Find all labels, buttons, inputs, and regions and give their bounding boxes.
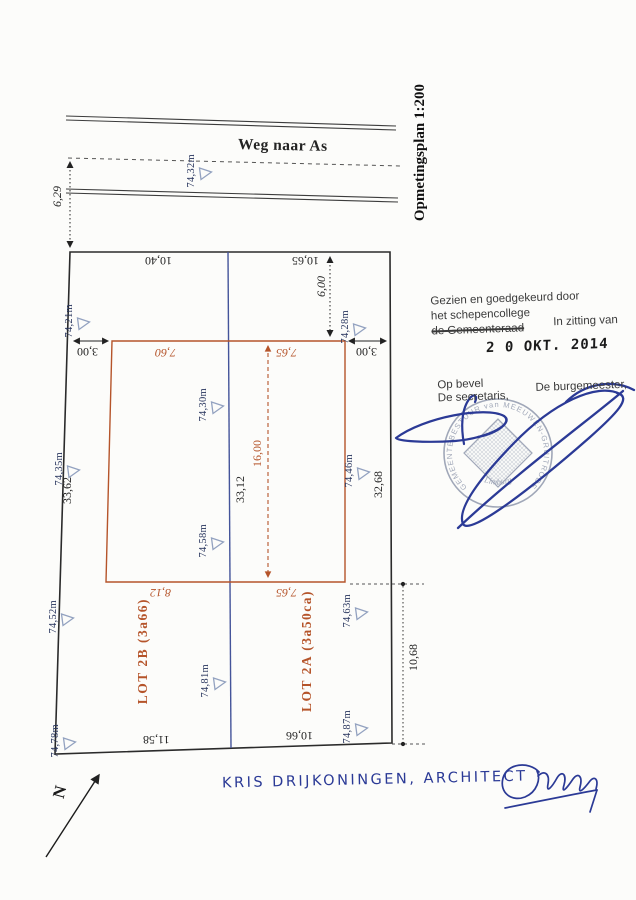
session-label: In zitting van: [553, 314, 618, 328]
benchmark-triangle-icon: [212, 677, 227, 691]
benchmark-triangle-icon: [352, 323, 367, 337]
elevation-marker: 74,35m: [54, 428, 81, 486]
elevation-marker: 74,32m: [186, 130, 213, 188]
secretary-label: De secretaris,: [438, 390, 509, 404]
elevation-marker: 74,78m: [50, 700, 77, 758]
benchmark-triangle-icon: [198, 167, 213, 181]
dim-zone-top-left: 7,60: [155, 345, 176, 360]
elevation-marker: 74,21m: [64, 280, 91, 338]
dim-front-left: 10,40: [145, 253, 172, 268]
approval-line3-struck: de Gemeenteraad: [431, 322, 524, 337]
mayor-label: De burgemeester,: [535, 379, 627, 394]
benchmark-triangle-icon: [62, 737, 77, 751]
dim-zone-bottom-right: 7,65: [276, 585, 297, 600]
dim-setback-right: 3,00: [356, 344, 377, 359]
elevation-marker: 74,63m: [342, 570, 369, 628]
benchmark-triangle-icon: [354, 723, 369, 737]
elevation-marker: 74,58m: [198, 500, 225, 558]
mayor-signature: [458, 384, 634, 528]
dim-rear-right: 10,66: [286, 728, 313, 743]
approval-line2: het schepencollege: [431, 307, 530, 322]
elevation-marker: 74,30m: [198, 364, 225, 422]
dim-side-right: 32,68: [371, 471, 386, 498]
plan-title: Opmetingsplan 1:200: [412, 84, 429, 221]
dim-zone-depth: 16,00: [250, 440, 265, 467]
lot-2b-label: LOT 2B (3a66): [135, 598, 151, 704]
elevation-marker: 74,46m: [344, 430, 371, 488]
elevation-marker: 74,87m: [342, 686, 369, 744]
dim-road-offset: 6,29: [50, 186, 65, 207]
dim-right-rear-offset: 10,68: [406, 644, 421, 671]
order-label: Op bevel: [437, 378, 483, 392]
benchmark-triangle-icon: [356, 467, 371, 481]
elevation-marker: 74,81m: [200, 640, 227, 698]
signatures-layer: [0, 0, 636, 900]
lot-2a-label: LOT 2A (3a50ca): [299, 590, 315, 712]
benchmark-triangle-icon: [66, 465, 81, 479]
benchmark-triangle-icon: [210, 537, 225, 551]
dim-build-depth-offset: 6,00: [314, 276, 329, 297]
benchmark-triangle-icon: [210, 401, 225, 415]
elevation-marker: 74,52m: [48, 576, 75, 634]
benchmark-triangle-icon: [76, 317, 91, 331]
road-name-label: Weg naar As: [238, 136, 328, 156]
survey-plan-page: GEMEENTEBESTUUR van MEEUWEN-GRUITRODE Li…: [0, 0, 636, 900]
dim-side-middle: 33,12: [233, 476, 248, 503]
benchmark-triangle-icon: [60, 613, 75, 627]
dim-zone-bottom-left: 8,12: [150, 585, 171, 600]
elevation-marker: 74,28m: [340, 286, 367, 344]
dim-setback-left: 3,00: [77, 344, 98, 359]
dim-front-right: 10,65: [292, 253, 319, 268]
dim-zone-top-right: 7,65: [276, 345, 297, 360]
dim-rear-left: 11,58: [143, 732, 170, 747]
approval-line1: Gezien en goedgekeurd door: [430, 290, 579, 307]
benchmark-triangle-icon: [354, 607, 369, 621]
